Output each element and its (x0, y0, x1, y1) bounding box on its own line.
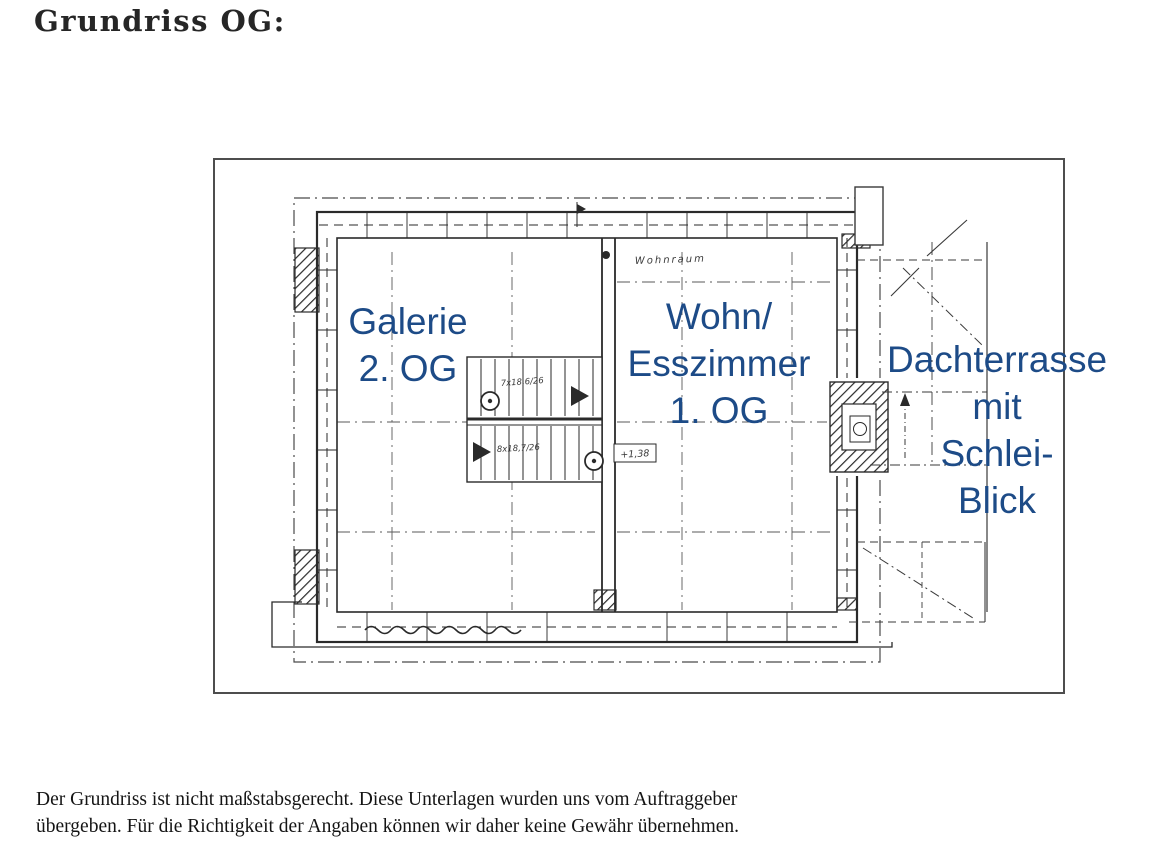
room-label-line: 2. OG (348, 345, 467, 392)
chimney (827, 378, 891, 476)
disclaimer-line-2: übergeben. Für die Richtigkeit der Angab… (36, 816, 739, 837)
disclaimer-text: Der Grundriss ist nicht maßstabsgerecht.… (36, 786, 739, 840)
room-label-wohn-esszimmer: Wohn/ Esszimmer 1. OG (628, 293, 811, 434)
staircase: 7x18,6/26 8x18,7/26 (467, 357, 603, 482)
section-flag (577, 202, 586, 227)
page-title: Grundriss OG: (34, 4, 286, 38)
room-label-line: Dachterrasse (887, 336, 1107, 383)
level-mark: +1,38 (614, 444, 656, 462)
floorplan-frame: 7x18,6/26 8x18,7/26 +1,38 (213, 158, 1065, 694)
room-label-line: Galerie (348, 298, 467, 345)
parapet-step (272, 602, 892, 647)
handwriting-scribble (365, 627, 521, 634)
disclaimer-line-1: Der Grundriss ist nicht maßstabsgerecht.… (36, 789, 737, 810)
room-label-dachterrasse: Dachterrasse mit Schlei- Blick (887, 336, 1107, 524)
room-label-line: 1. OG (628, 387, 811, 434)
scanned-page: Grundriss OG: (0, 0, 1152, 863)
level-mark-text: +1,38 (620, 448, 650, 461)
room-note-wohnraum: Wohnraum (635, 254, 706, 267)
room-label-line: Schlei- (887, 430, 1107, 477)
room-label-galerie: Galerie 2. OG (348, 298, 467, 392)
room-label-line: mit (887, 383, 1107, 430)
room-label-line: Esszimmer (628, 340, 811, 387)
room-label-line: Wohn/ (628, 293, 811, 340)
room-label-line: Blick (887, 477, 1107, 524)
